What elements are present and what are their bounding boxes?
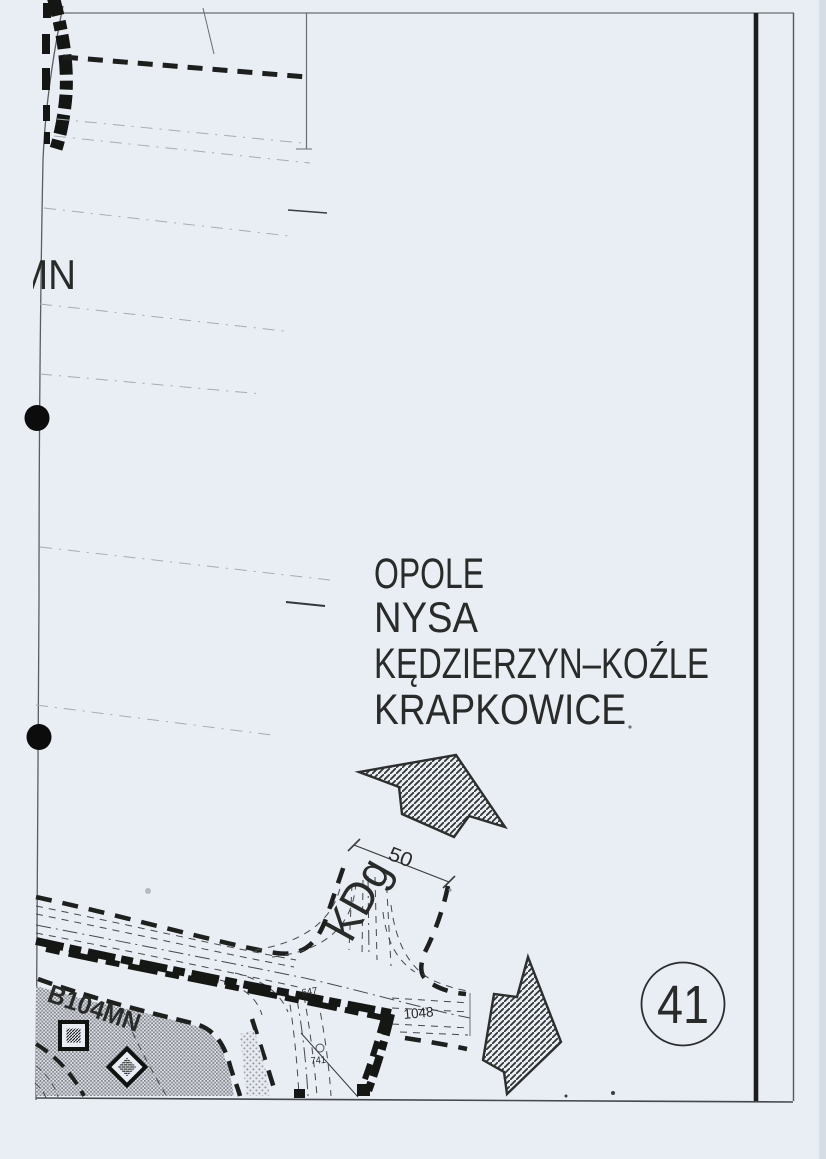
zone-b104mn: B104MN [35,978,270,1098]
scan-edge-strip [819,0,826,1159]
parcel-label-647: 647 [301,986,319,999]
sheet-number-badge: 41 [642,963,725,1046]
bold-dashed-boundary [63,57,307,77]
city-label-kedzierzyn-kozle: KĘDZIERZYN–KOŹLE [374,640,709,688]
short-line-segment-mid [286,602,325,606]
city-label-opole: OPOLE [374,550,484,598]
short-line-segment-top [288,210,327,213]
top-left-map-fragment [42,0,312,152]
dimension-tick-right [443,876,455,888]
zone-label-mn-group: MN [16,251,76,298]
parcel-line-diagonal [203,8,214,54]
heavy-boundary-blobs [42,3,51,144]
dimension-value: 50 [385,843,415,872]
zone-label-mn: MN [16,251,76,298]
plan-drawing: MN OPOLE NYSA KĘDZIERZYN–KOŹLE KRAPKOWIC… [0,0,826,1159]
direction-sign-city-list: OPOLE NYSA KĘDZIERZYN–KOŹLE KRAPKOWICE [374,550,709,734]
boundary-blob-1 [294,1089,305,1098]
zone-dotted-strip [240,1030,270,1096]
city-label-nysa: NYSA [374,594,478,642]
survey-point-icon [316,1044,324,1052]
parcel-label-1048: 1048 [403,1003,434,1022]
heavy-boundary-line [53,0,66,152]
building-symbol-1 [60,1022,87,1049]
direction-arrow-down-icon [483,957,561,1094]
faint-cadastral-lines [36,119,330,735]
boundary-blob-2 [357,1084,370,1096]
frame-bottom-line [36,1098,793,1102]
punch-hole-top [25,405,50,431]
dimension-tick-left [348,839,360,851]
direction-arrow-up-icon [359,755,505,837]
scanned-plan-page: MN OPOLE NYSA KĘDZIERZYN–KOŹLE KRAPKOWIC… [0,0,826,1159]
survey-leader-line [301,1033,358,1097]
sheet-number-value: 41 [657,975,709,1035]
city-label-krapkowice: KRAPKOWICE [374,686,626,734]
punch-hole-bottom [27,724,52,750]
parcel-label-741: 741 [310,1055,326,1067]
